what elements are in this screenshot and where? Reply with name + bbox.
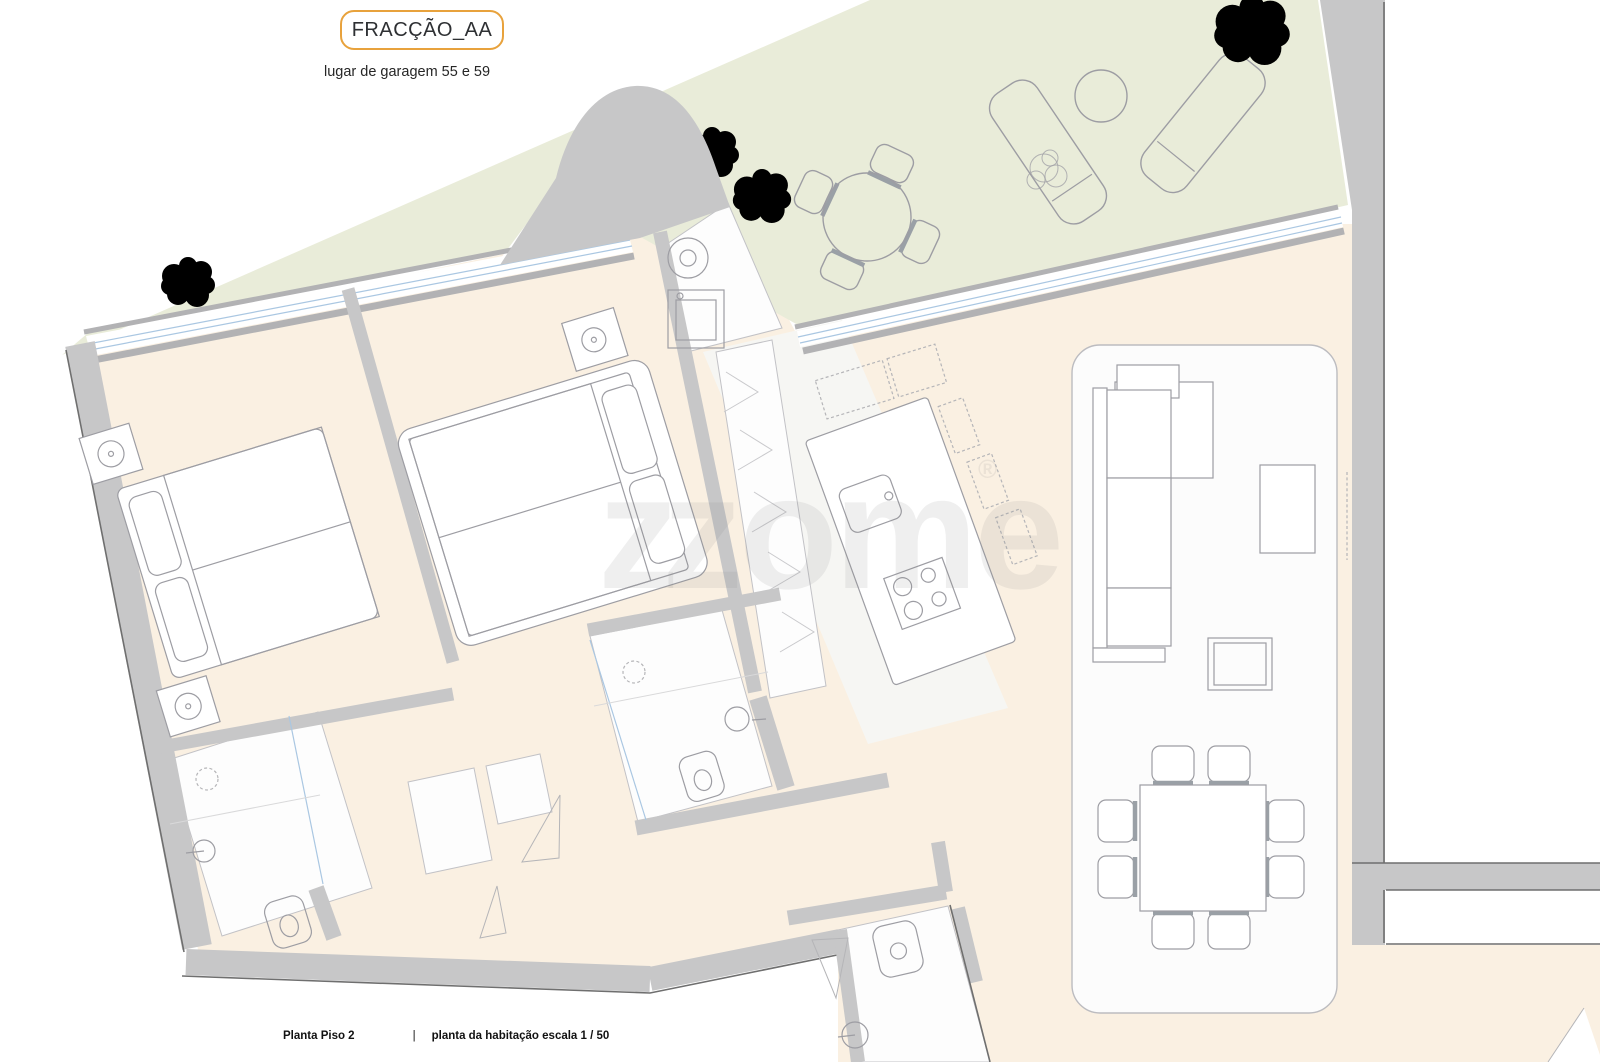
tree-icon [1214,0,1290,65]
tree-icon [161,257,215,307]
fraction-label: FRACÇÃO_AA [352,19,493,42]
floor-plan-page: z zome ® FRACÇÃO_AA lugar de garagem 55 … [0,0,1600,1062]
registered-icon: ® [978,454,997,484]
zome-watermark: z zome ® [598,442,1060,623]
garage-note: lugar de garagem 55 e 59 [324,64,490,80]
floor-plan-drawing: z zome ® [0,0,1600,1062]
watermark-text: zome [662,442,1060,623]
plan-name: Planta Piso 2 [283,1030,355,1042]
fraction-label-badge: FRACÇÃO_AA [340,10,504,50]
caption-separator: | [413,1030,416,1042]
plan-caption: Planta Piso 2 | planta da habitação esca… [283,1030,609,1042]
tv-console [1260,465,1315,553]
hall-closet [486,754,552,824]
scale-note: planta da habitação escala 1 / 50 [432,1030,610,1042]
